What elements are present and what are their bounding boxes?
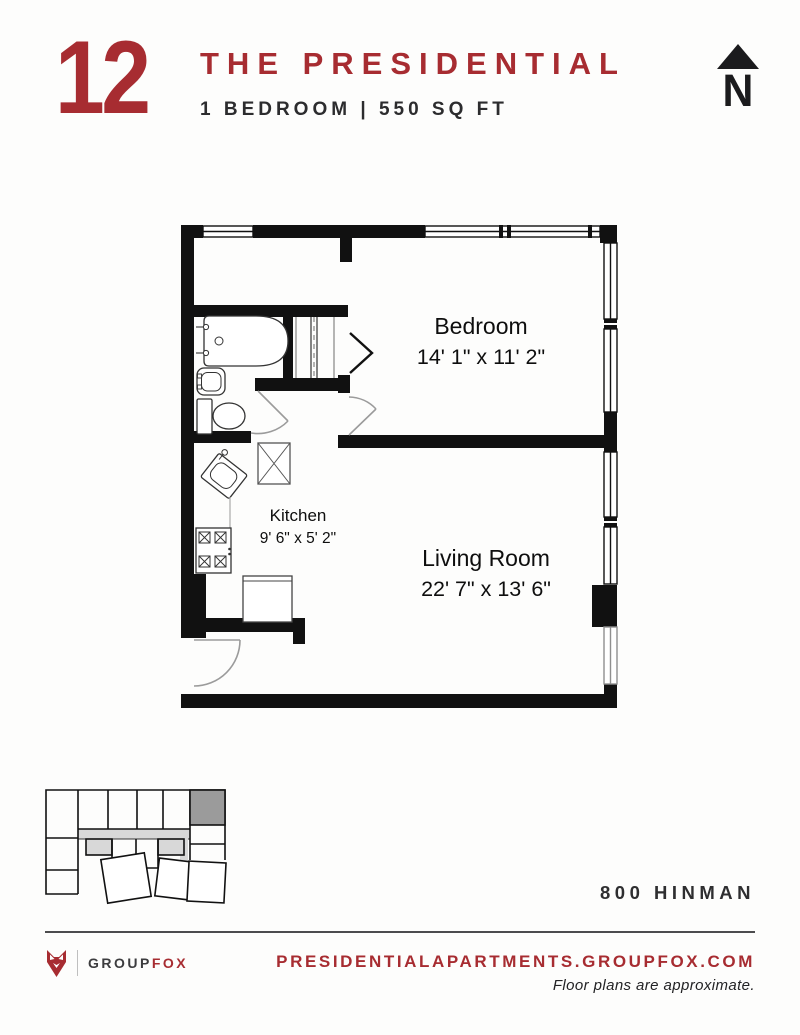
groupfox-logo: GROUPFOX	[45, 947, 188, 979]
logo-fox-text: FOX	[152, 955, 188, 971]
kitchen-dimensions: 9' 6" x 5' 2"	[260, 530, 336, 547]
key-plan-lower-units	[101, 853, 226, 903]
closet-door-chevron	[350, 333, 372, 373]
building-name: THE PRESIDENTIAL	[200, 48, 626, 79]
living-room-dimensions: 22' 7" x 13' 6"	[421, 577, 551, 601]
disclaimer-text: Floor plans are approximate.	[553, 977, 755, 994]
bathroom-fixtures	[196, 316, 288, 434]
logo-divider	[77, 950, 78, 976]
address: 800 HINMAN	[600, 882, 755, 904]
living-room-name: Living Room	[421, 543, 551, 573]
website-url: PRESIDENTIALAPARTMENTS.GROUPFOX.COM	[276, 952, 755, 972]
walls	[181, 225, 617, 708]
footer-divider	[45, 931, 755, 933]
title-block: THE PRESIDENTIAL 1 BEDROOM | 550 SQ FT	[200, 48, 626, 119]
refrigerator	[243, 576, 292, 622]
fox-icon	[45, 949, 68, 978]
bedroom-dimensions: 14' 1" x 11' 2"	[417, 345, 545, 369]
toilet-bowl	[213, 403, 245, 429]
closet-slider	[296, 317, 334, 378]
floor-plan-drawing	[160, 215, 630, 715]
toilet-tank	[197, 399, 212, 434]
living-room-label: Living Room 22' 7" x 13' 6"	[421, 543, 551, 604]
logo-text: GROUPFOX	[88, 955, 188, 971]
north-label: N	[704, 72, 772, 110]
bathtub	[204, 316, 288, 366]
logo-group-text: GROUP	[88, 955, 152, 971]
floor-plan-flyer: 12 THE PRESIDENTIAL 1 BEDROOM | 550 SQ F…	[0, 0, 800, 1035]
unit-number: 12	[55, 26, 148, 130]
bedroom-label: Bedroom 14' 1" x 11' 2"	[417, 311, 545, 372]
kitchen-sink	[201, 448, 252, 499]
bedroom-name: Bedroom	[417, 311, 545, 341]
kitchen-name: Kitchen	[260, 505, 336, 527]
key-plan	[40, 782, 240, 918]
kitchen-label: Kitchen 9' 6" x 5' 2"	[260, 505, 336, 550]
unit-specs: 1 BEDROOM | 550 SQ FT	[200, 100, 626, 119]
north-indicator: N	[702, 44, 774, 110]
key-plan-highlighted-unit	[190, 790, 225, 825]
